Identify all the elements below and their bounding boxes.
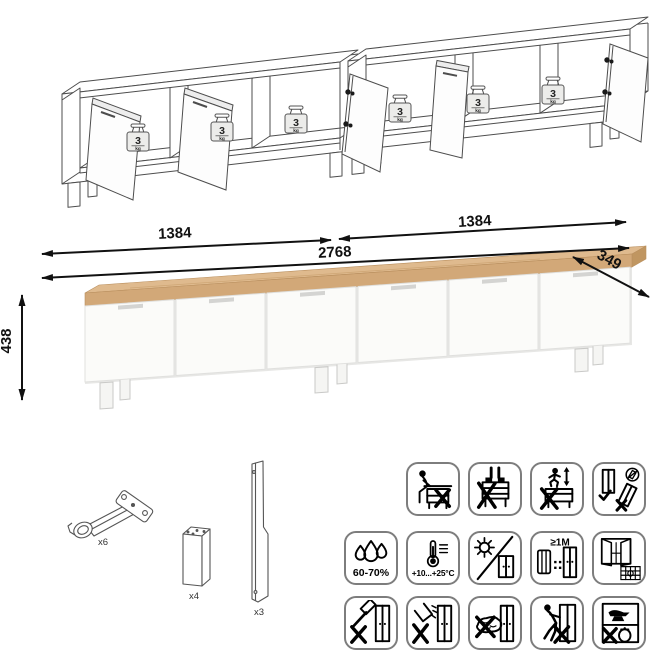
icon-assemble-upright: [592, 462, 646, 516]
safety-icons-row2: 60-70% +10...+25°C: [344, 531, 646, 585]
right-unit: [342, 17, 648, 174]
icon-no-liquids: [406, 596, 460, 650]
no-abrasive-pictogram: [472, 600, 518, 646]
no-standing-pictogram: [472, 466, 518, 512]
cabinet-render: [85, 246, 646, 409]
icon-ventilate-room: [592, 531, 646, 585]
hinge-icon: [602, 89, 607, 94]
hinge-icon: [343, 121, 348, 126]
no-jumping-pictogram: [534, 466, 580, 512]
humidity-label: 60-70%: [353, 568, 389, 579]
hardware-parts: x6 x4 x3: [0, 450, 340, 650]
leg-drawing: [183, 527, 210, 586]
icon-no-abrasives: [468, 596, 522, 650]
thermometer-icon: [410, 539, 456, 568]
hinge-count: x6: [98, 537, 108, 548]
dim-total-width: 2768: [318, 243, 352, 262]
svg-text:3: 3: [293, 117, 299, 129]
temperature-label: +10...+25°C: [412, 569, 455, 577]
icon-temperature-range: +10...+25°C: [406, 531, 460, 585]
svg-text:3: 3: [550, 88, 556, 100]
icon-no-jumping: [530, 462, 584, 516]
icon-no-hammering: [344, 596, 398, 650]
svg-text:3: 3: [219, 125, 225, 137]
dim-height: 438: [0, 328, 15, 353]
furniture-spec-sheet: 3 kg 3 kg 3 kg: [0, 0, 650, 650]
svg-text:kg: kg: [293, 128, 299, 134]
svg-text:kg: kg: [397, 117, 403, 123]
no-spill-pictogram: [410, 600, 456, 646]
rail-panel-drawing: [252, 461, 268, 602]
dim-left-width: 1384: [158, 224, 193, 243]
icon-no-heavy-objects: [592, 596, 646, 650]
svg-text:kg: kg: [219, 136, 225, 142]
heat-distance-pictogram: ≥1M: [534, 535, 580, 581]
hinge-icon: [345, 89, 350, 94]
open-window-pictogram: [596, 535, 642, 581]
no-drag-pictogram: [534, 600, 580, 646]
weight-3kg-icon: 3 kg: [285, 106, 307, 134]
dim-right-width: 1384: [458, 215, 493, 231]
dimension-drawing: 1384 1384 2768 349 438: [0, 215, 650, 450]
hinge-icon: [604, 57, 609, 62]
pot-icon: [619, 627, 631, 642]
weight-3kg-icon: 3 kg: [389, 95, 411, 123]
anvil-icon: [608, 610, 629, 621]
safety-icons-row3: [344, 596, 646, 650]
icon-no-dragging: [530, 596, 584, 650]
safety-icons-row1: [406, 462, 646, 516]
no-sitting-pictogram: [410, 466, 456, 512]
svg-text:3: 3: [135, 135, 141, 147]
svg-text:kg: kg: [550, 99, 556, 105]
no-sun-pictogram: [472, 535, 518, 581]
leg-count: x4: [189, 591, 199, 602]
svg-text:3: 3: [475, 97, 481, 109]
assembled-view-open-doors: 3 kg 3 kg 3 kg: [0, 0, 650, 215]
no-heavy-load-pictogram: [596, 600, 642, 646]
assemble-upright-pictogram: [596, 466, 642, 512]
open-door: [430, 61, 469, 159]
icon-keep-1m-from-heat: ≥1M: [530, 531, 584, 585]
rail-panel-count: x3: [254, 607, 264, 618]
icon-no-standing: [468, 462, 522, 516]
svg-text:kg: kg: [135, 146, 141, 152]
left-unit: [62, 50, 358, 207]
svg-text:kg: kg: [475, 108, 481, 114]
svg-text:3: 3: [397, 106, 403, 118]
water-drops-icon: [348, 538, 394, 567]
no-hammer-pictogram: [348, 600, 394, 646]
open-door-hinged: [602, 44, 648, 142]
open-door-hinged: [342, 74, 388, 172]
icon-no-sitting: [406, 462, 460, 516]
icon-no-direct-sunlight: [468, 531, 522, 585]
dim-left-width-arrow: [42, 240, 331, 254]
vent-grid-icon: [621, 567, 640, 580]
icon-humidity-range: 60-70%: [344, 531, 398, 585]
hinge-drawing: [68, 490, 154, 541]
